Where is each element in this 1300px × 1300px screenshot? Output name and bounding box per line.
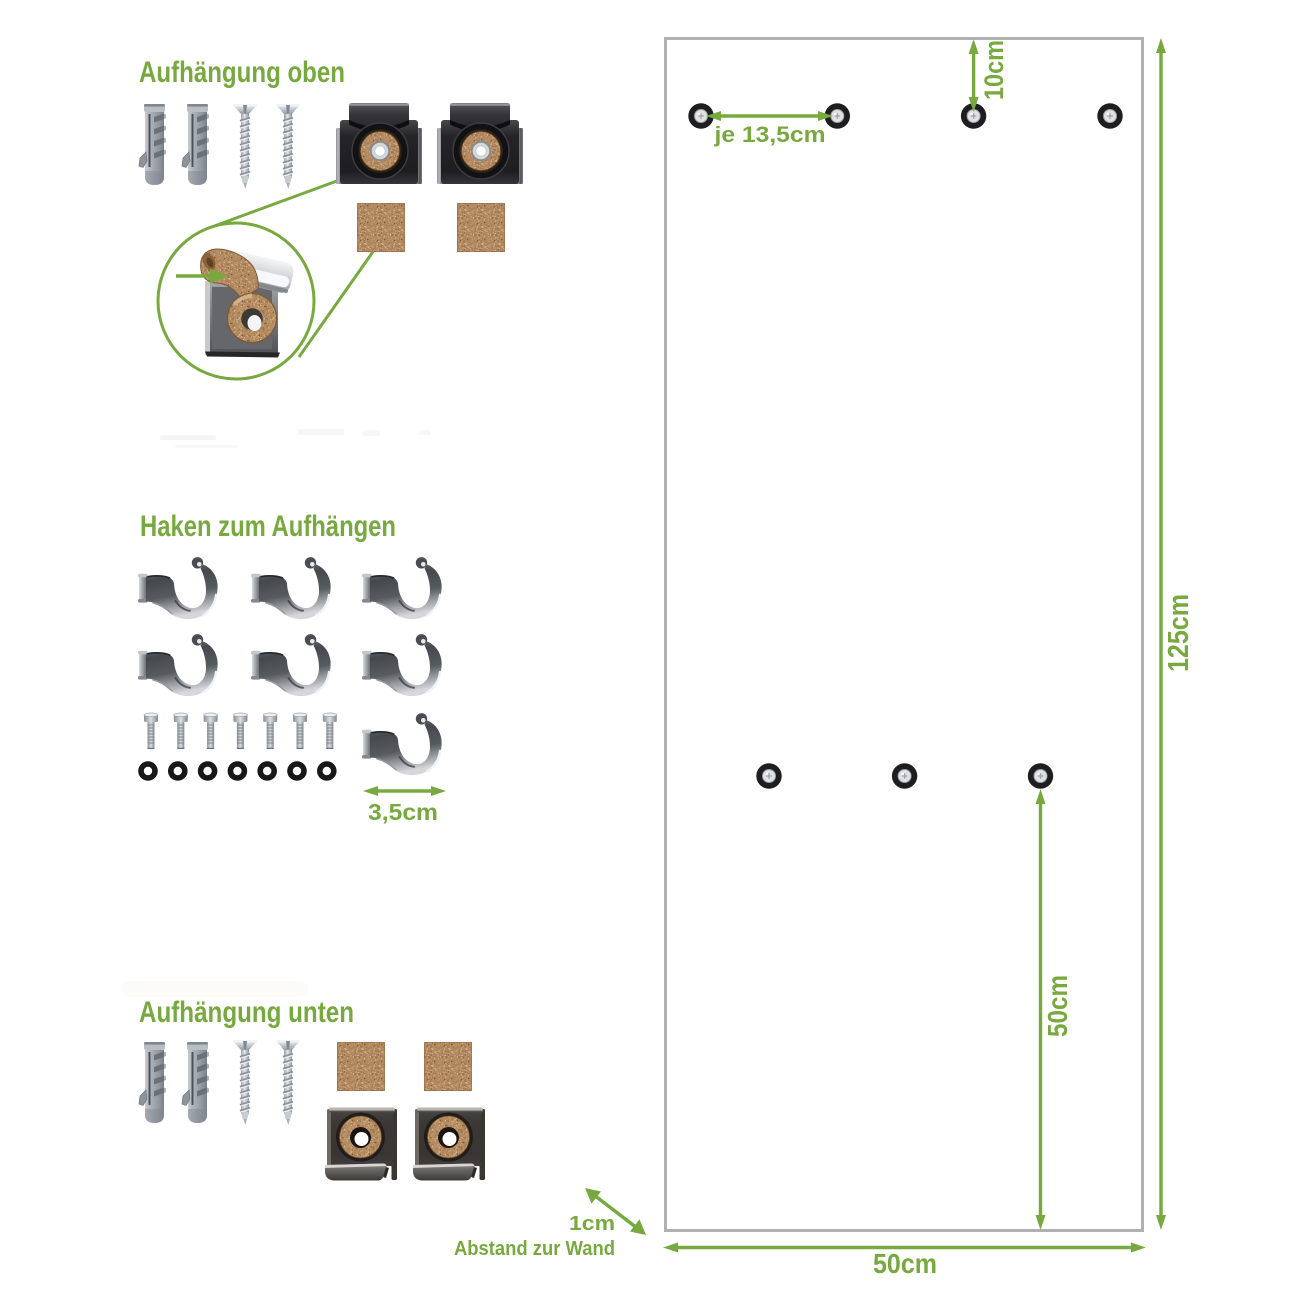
svg-text:3,5cm: 3,5cm — [368, 799, 438, 825]
svg-text:je 13,5cm: je 13,5cm — [713, 122, 825, 147]
svg-text:Aufhängung unten: Aufhängung unten — [139, 996, 354, 1029]
svg-text:Abstand zur Wand: Abstand zur Wand — [454, 1238, 615, 1260]
svg-text:10cm: 10cm — [979, 40, 1009, 100]
svg-text:Haken zum Aufhängen: Haken zum Aufhängen — [140, 510, 396, 543]
svg-text:Aufhängung oben: Aufhängung oben — [139, 56, 345, 89]
svg-text:1cm: 1cm — [569, 1213, 615, 1235]
svg-text:50cm: 50cm — [873, 1248, 937, 1279]
svg-text:125cm: 125cm — [1163, 594, 1195, 672]
svg-text:50cm: 50cm — [1042, 975, 1073, 1037]
